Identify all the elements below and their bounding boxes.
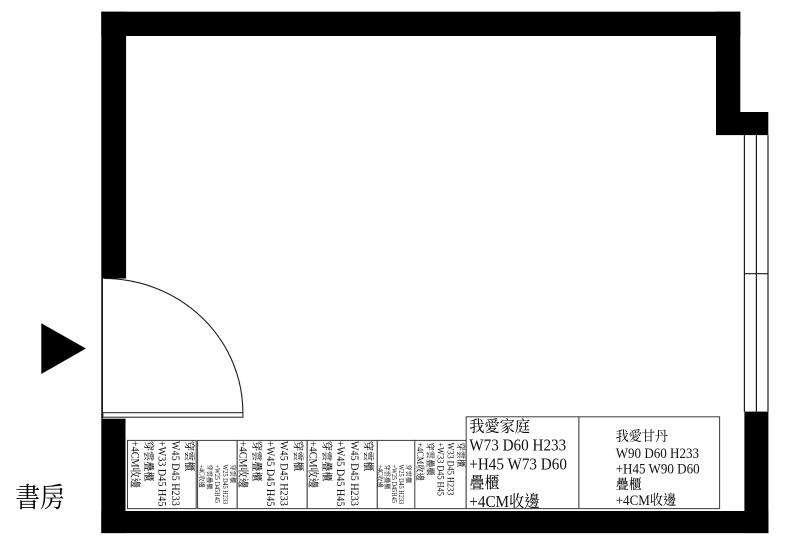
svg-text:W90 D60 H233: W90 D60 H233 bbox=[616, 446, 700, 462]
svg-text:W73 D60 H233: W73 D60 H233 bbox=[469, 437, 566, 455]
svg-text:+W45 D45 H45: +W45 D45 H45 bbox=[264, 441, 277, 507]
svg-text:+W33 D45 H45: +W33 D45 H45 bbox=[435, 443, 446, 497]
svg-text:+H45 W90 D60: +H45 W90 D60 bbox=[616, 461, 700, 477]
svg-text:+4CM: +4CM bbox=[306, 441, 319, 468]
svg-text:W45 D45 H233: W45 D45 H233 bbox=[169, 441, 182, 506]
svg-text:+4C: +4C bbox=[376, 465, 383, 476]
svg-text:W25 D45 H233: W25 D45 H233 bbox=[221, 465, 228, 505]
svg-text:+4CM: +4CM bbox=[236, 441, 249, 468]
svg-text:+4CM: +4CM bbox=[469, 493, 509, 511]
svg-text:+4CM: +4CM bbox=[415, 443, 426, 465]
svg-text:+W33 D45 H45: +W33 D45 H45 bbox=[155, 441, 168, 507]
svg-text:+4CM: +4CM bbox=[616, 492, 650, 508]
svg-text:+W25 D45H45: +W25 D45H45 bbox=[390, 465, 397, 504]
svg-text:+W45 D45 H45: +W45 D45 H45 bbox=[334, 441, 347, 507]
svg-text:+W25 D45H45: +W25 D45H45 bbox=[213, 465, 220, 504]
svg-text:W45 D45 H233: W45 D45 H233 bbox=[278, 441, 291, 506]
svg-text:+4C: +4C bbox=[197, 465, 204, 476]
svg-text:W33 D45 H233: W33 D45 H233 bbox=[445, 443, 456, 496]
svg-text:+4CM: +4CM bbox=[128, 441, 141, 468]
svg-text:+H45 W73 D60: +H45 W73 D60 bbox=[469, 456, 567, 474]
svg-text:W45 D45 H233: W45 D45 H233 bbox=[348, 441, 361, 506]
